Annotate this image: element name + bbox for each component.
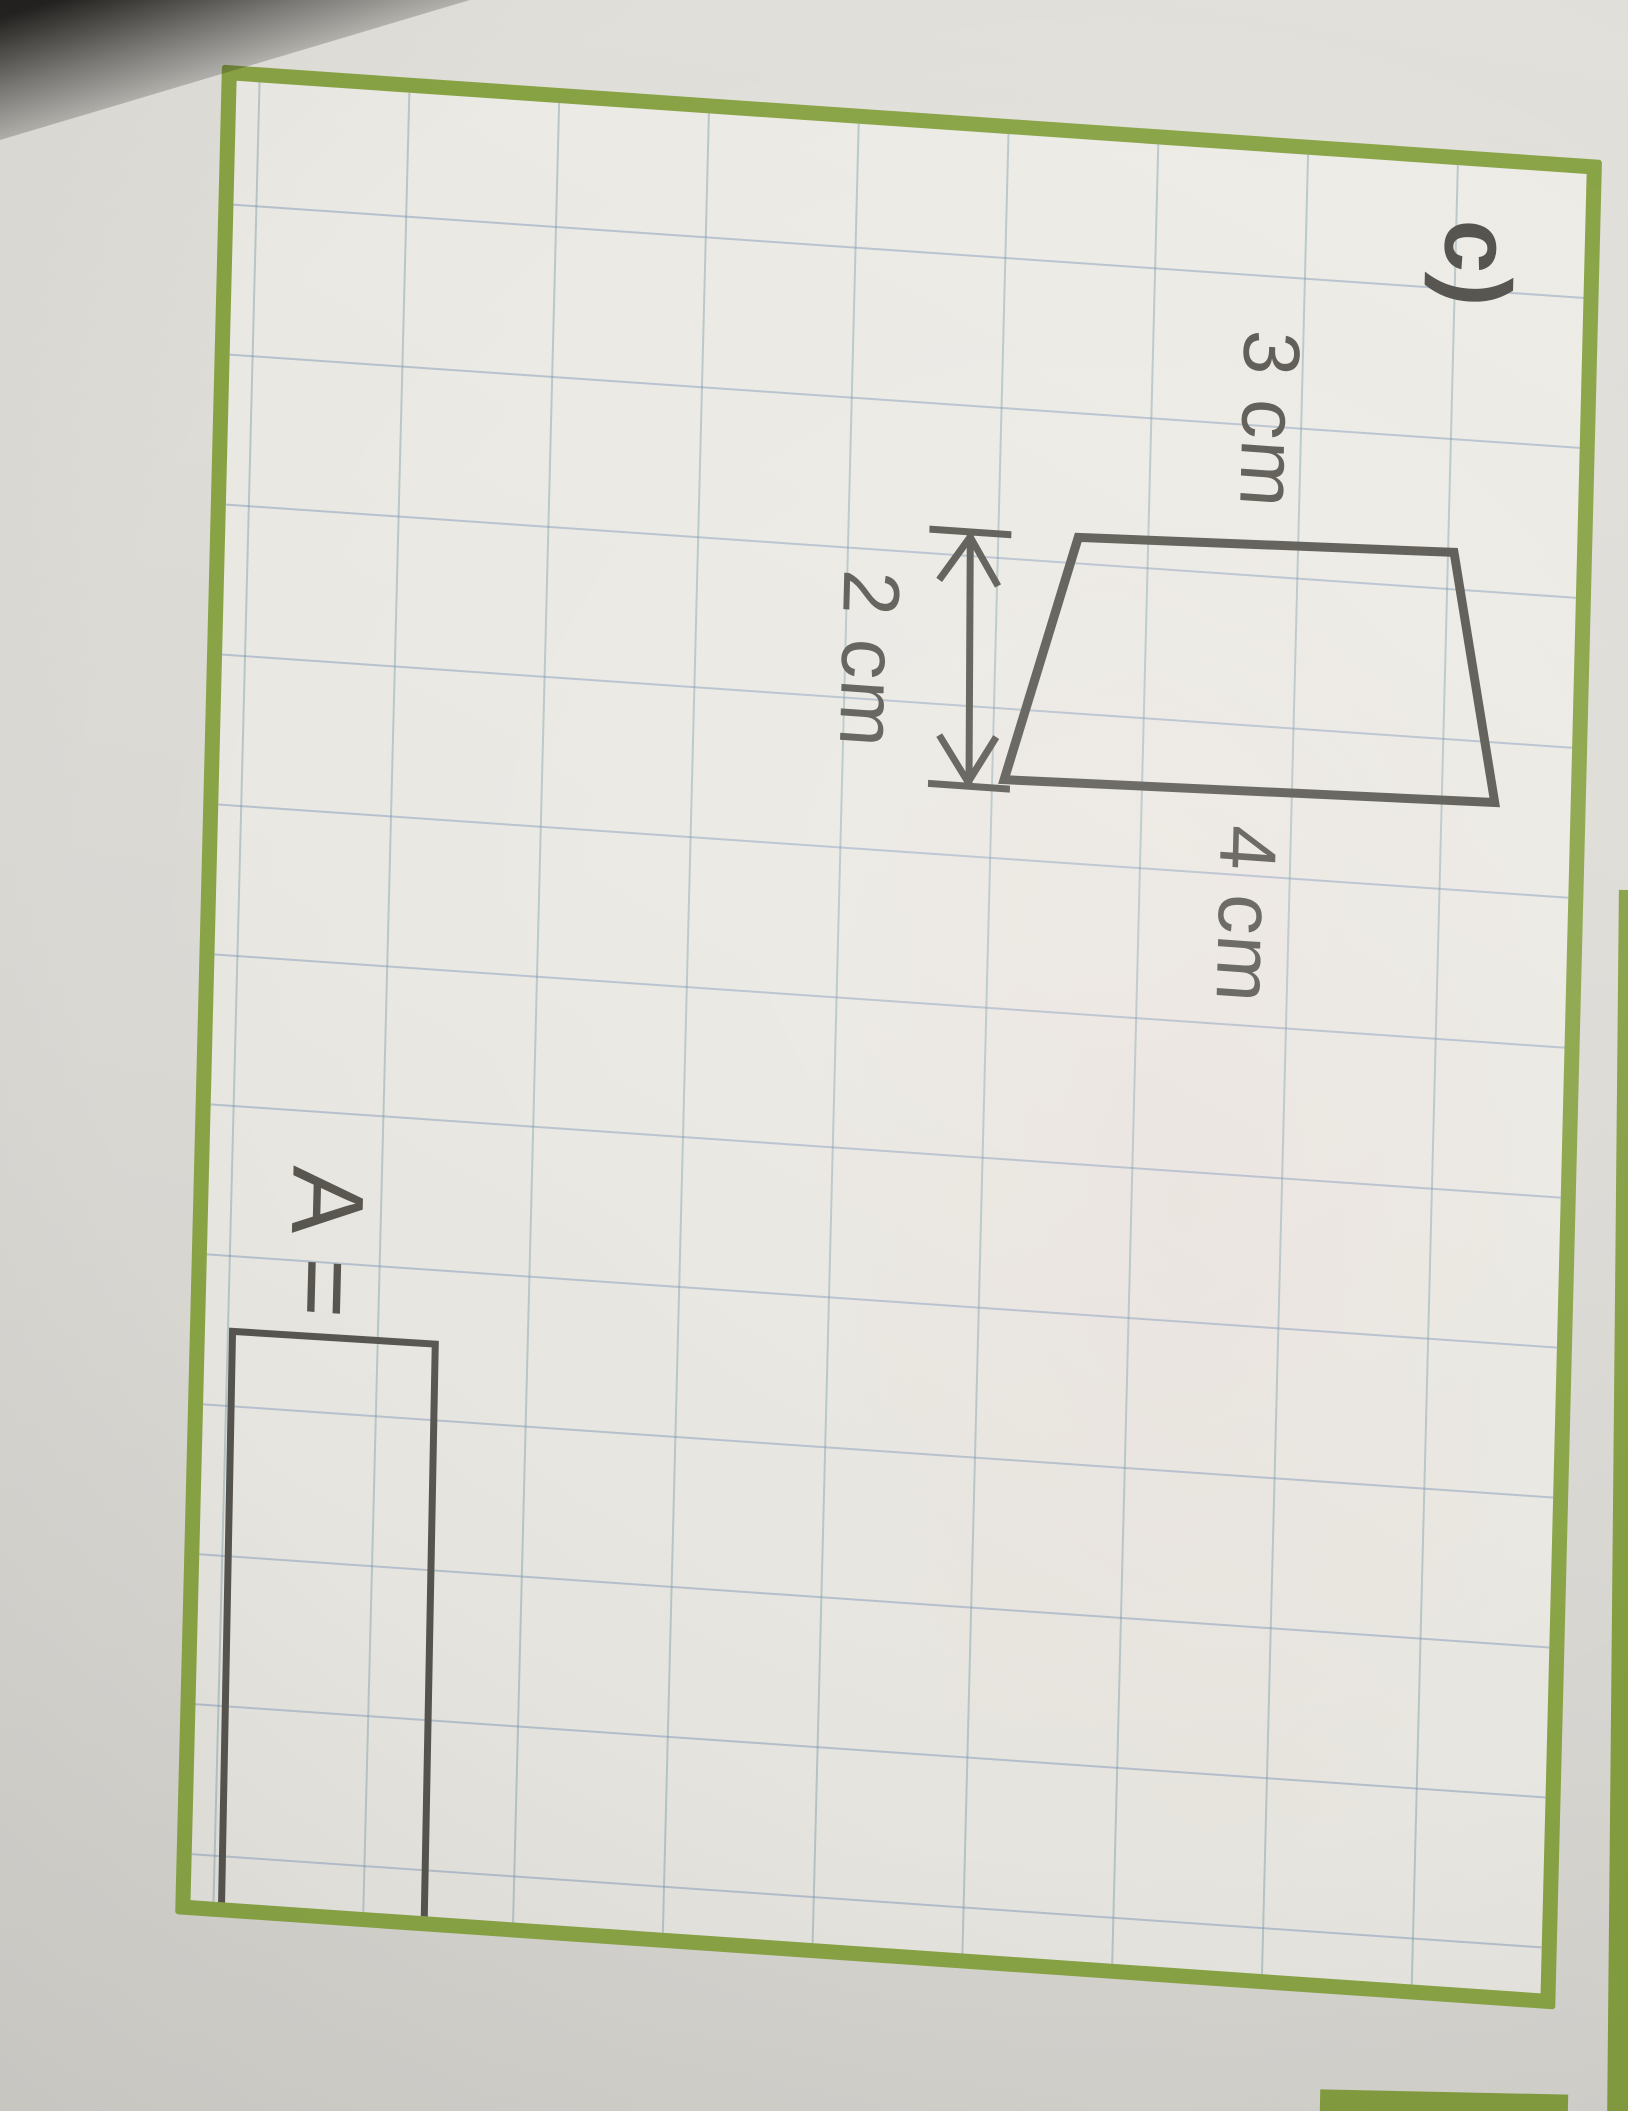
side-3cm-label: 3 cm: [1221, 328, 1317, 512]
side-4cm-label: 4 cm: [1198, 823, 1294, 1007]
answer-box: [217, 1328, 439, 1967]
worksheet-page: c) 3 cm 4 cm 2 cm A =: [0, 0, 1628, 2111]
width-2cm-label: 2 cm: [821, 567, 917, 751]
width-dimension-arrow: [923, 529, 1016, 789]
worksheet-photo: c) 3 cm 4 cm 2 cm A =: [0, 0, 1628, 2111]
exercise-panel-frame: c) 3 cm 4 cm 2 cm A =: [175, 65, 1602, 2010]
adjacent-panel-border-top: [1607, 890, 1628, 2111]
adjacent-panel-border-right: [1320, 2089, 1568, 2111]
trapezoid-shape: [1004, 522, 1501, 814]
area-equals-label: A =: [266, 1163, 387, 1321]
